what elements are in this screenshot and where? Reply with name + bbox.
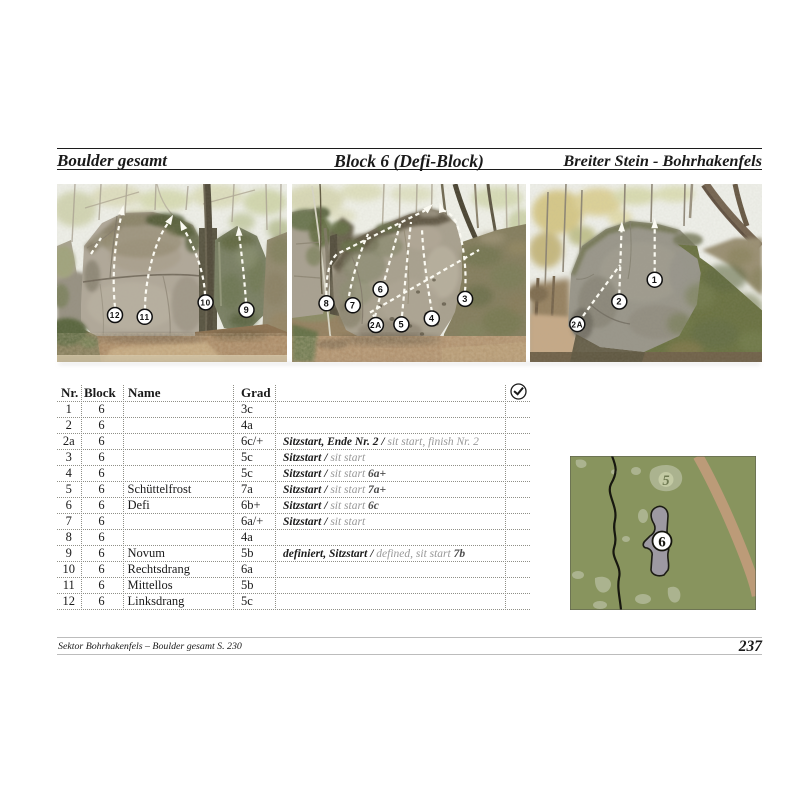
svg-text:2A: 2A [571, 320, 583, 329]
svg-text:6: 6 [658, 535, 666, 551]
svg-text:11: 11 [140, 313, 150, 322]
svg-text:2A: 2A [370, 321, 382, 330]
svg-text:5: 5 [398, 320, 404, 330]
svg-text:9: 9 [244, 305, 250, 315]
svg-text:7: 7 [350, 301, 356, 311]
svg-text:4: 4 [429, 314, 435, 324]
svg-text:2: 2 [616, 297, 622, 307]
svg-text:3: 3 [462, 294, 468, 304]
svg-text:1: 1 [652, 275, 658, 285]
svg-text:8: 8 [324, 299, 330, 309]
svg-text:10: 10 [200, 299, 211, 308]
svg-text:6: 6 [378, 285, 384, 295]
svg-text:5: 5 [662, 473, 669, 489]
svg-text:12: 12 [110, 311, 121, 320]
